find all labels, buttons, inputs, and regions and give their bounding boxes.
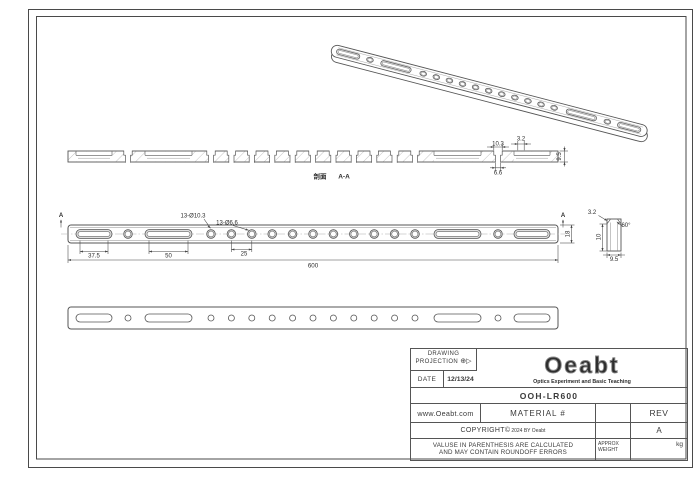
slot-through [145, 314, 192, 322]
hole-through [331, 231, 337, 237]
copyright-text: COPYRIGHT© [461, 427, 511, 434]
dim-arrow [601, 248, 603, 251]
dim-label-section-chamfer: 3.2 [517, 137, 526, 143]
hole-through [269, 231, 275, 237]
weight-cell: APPROX WEIGHT [596, 439, 631, 460]
section-cbore-clear [350, 150, 358, 155]
section-cbore-clear [268, 150, 276, 155]
empty-cell [596, 423, 631, 439]
slot-through [516, 232, 548, 237]
projection-label: PROJECTION [415, 359, 458, 365]
section-slot-clear [76, 152, 112, 162]
disclaimer-line1: VALUSE IN PARENTHESIS ARE CALCULATED [411, 442, 595, 449]
front-view [61, 225, 565, 243]
dim-arrow [185, 250, 188, 252]
hole-through [290, 315, 296, 321]
dim-arrow [570, 240, 572, 243]
dim-arrow [515, 143, 518, 145]
website: www.Oeabt.com [411, 404, 481, 423]
section-arrow-label-right: A [561, 213, 566, 219]
dim-arrow [492, 167, 495, 169]
logo: Oeabt Optics Experiment and Basic Teachi… [477, 349, 687, 387]
dim-arrow [555, 259, 558, 261]
hole-through [371, 315, 377, 321]
section-cbore-clear [494, 150, 502, 155]
slot-through [76, 314, 112, 322]
section-cbore-clear [288, 150, 296, 155]
section-cbore-clear [411, 150, 419, 155]
rev-label: REV [631, 404, 687, 423]
slot-through [436, 232, 479, 237]
hole-through [412, 231, 418, 237]
hole-through [229, 231, 235, 237]
isometric-view [329, 44, 650, 143]
hole-through [228, 315, 234, 321]
callout-through-hole: 13-Ø6.6 [216, 221, 238, 227]
callout-counterbore: 13-Ø10.3 [180, 214, 206, 220]
section-slot-clear [514, 152, 550, 162]
dim-label-slot1: 37.5 [88, 254, 100, 260]
iso-edge-line [338, 48, 643, 127]
dim-arrow [570, 225, 572, 228]
part-number: OOH-LR600 [411, 388, 687, 404]
weight-label-2: WEIGHT [598, 447, 630, 453]
hole-through [125, 315, 131, 321]
hole-through [495, 315, 501, 321]
hole-through [249, 315, 255, 321]
hole-through [125, 231, 131, 237]
slot-through [147, 232, 190, 237]
dim-arrow [562, 220, 564, 223]
bottom-view [68, 307, 558, 329]
dim-arrow [607, 254, 610, 256]
disclaimer-cell: VALUSE IN PARENTHESIS ARE CALCULATED AND… [411, 439, 596, 460]
logo-tagline: Optics Experiment and Basic Teaching [533, 379, 631, 385]
rev-value: A [631, 423, 687, 439]
hole-through [371, 231, 377, 237]
material-label: MATERIAL # [481, 404, 596, 423]
logo-cell: Oeabt Optics Experiment and Basic Teachi… [477, 349, 687, 388]
hole-through [351, 231, 357, 237]
projection-cell: DRAWING PROJECTION ⊕▷ [411, 349, 477, 371]
hole-through [351, 315, 357, 321]
dim-arrow [105, 250, 108, 252]
hole-through [495, 231, 501, 237]
hole-through [249, 231, 255, 237]
section-cbore-clear [248, 150, 256, 155]
dim-arrow [68, 259, 71, 261]
dim-label-cbore-width: 10.3 [492, 142, 504, 148]
section-cbore-clear [390, 150, 398, 155]
hole-through [208, 231, 214, 237]
section-arrow-label-left: A [59, 213, 64, 219]
section-view-aa [68, 150, 558, 163]
dim-arrow [149, 250, 152, 252]
section-cbore-clear [329, 150, 337, 155]
hole-through [392, 231, 398, 237]
section-cbore-clear [370, 150, 378, 155]
section-cbore-clear [227, 150, 235, 155]
dim-arrow [80, 250, 83, 252]
slot-through [514, 314, 550, 322]
logo-text: Oeabt [544, 352, 619, 378]
title-block: DRAWING PROJECTION ⊕▷ DATE 12/13/24 Oeab… [410, 348, 688, 461]
copyright-subtext: 2024 BY Oeabt [511, 428, 545, 434]
dim-label-end-width: 9.5 [610, 257, 619, 263]
weight-unit: kg [631, 439, 687, 460]
date-value: 12/13/24 [444, 371, 477, 388]
dim-arrow [524, 143, 527, 145]
dim-arrow [60, 220, 62, 223]
date-label: DATE [411, 371, 444, 388]
slot-through [434, 314, 481, 322]
section-cbore-clear [207, 150, 215, 155]
empty-cell [596, 404, 631, 423]
section-cbore-clear [309, 150, 317, 155]
slot-through [78, 232, 110, 237]
dim-arrow [601, 224, 603, 227]
hole-through [290, 231, 296, 237]
dim-label-thru-width: 6.6 [494, 171, 503, 177]
iso-edge-line [336, 55, 641, 134]
dim-label-slot2: 50 [165, 254, 172, 260]
dim-label-end-height: 10 [597, 233, 603, 240]
dim-label-end-angle: 60° [621, 223, 631, 229]
dim-label-end-chamfer: 3.2 [588, 210, 597, 216]
copyright-cell: COPYRIGHT© 2024 BY Oeabt [411, 423, 596, 439]
disclaimer-line2: AND MAY CONTAIN ROUNDOFF ERRORS [411, 449, 595, 456]
hole-through [330, 315, 336, 321]
hole-through [310, 315, 316, 321]
projection-cone-icon: ▷ [466, 358, 471, 365]
hole-through [412, 315, 418, 321]
dim-label-rail-width: 18 [566, 230, 572, 237]
drawing-sheet: 剖面 A-A 10.3 6.6 3.2 9.5 A A 13-Ø10.3 13-… [0, 0, 700, 478]
section-label: A-A [338, 174, 350, 181]
dim-arrow [231, 248, 234, 250]
hole-through [269, 315, 275, 321]
dim-label-section-thickness: 9.5 [557, 152, 563, 161]
section-slot-clear [434, 152, 481, 162]
dim-arrow [249, 248, 252, 250]
dim-arrow [563, 162, 565, 165]
section-label-cn: 剖面 [314, 172, 328, 181]
dim-label-pitch: 25 [241, 252, 248, 258]
hole-through [310, 231, 316, 237]
dim-arrow [501, 167, 504, 169]
section-cbore-clear [124, 150, 132, 155]
hole-through [392, 315, 398, 321]
dim-arrow [618, 254, 621, 256]
hole-through [208, 315, 214, 321]
dim-arrow [563, 148, 565, 151]
dim-label-length: 600 [308, 263, 319, 270]
section-slot-clear [145, 152, 192, 162]
